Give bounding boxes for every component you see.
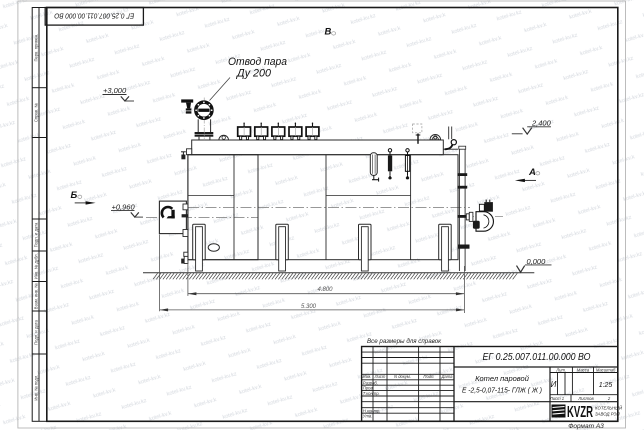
- svg-text:Инв. № дубл.: Инв. № дубл.: [33, 253, 38, 279]
- svg-text:Масса: Масса: [577, 367, 590, 372]
- svg-text:Листов: Листов: [577, 396, 594, 401]
- svg-text:Дата: Дата: [440, 374, 453, 379]
- svg-text:ЗАВОД РЭП: ЗАВОД РЭП: [595, 412, 621, 417]
- svg-text:Лист 1: Лист 1: [549, 396, 564, 401]
- svg-text:Б: Б: [71, 190, 78, 201]
- svg-text:Утв.: Утв.: [363, 414, 373, 419]
- svg-text:Лист: Лист: [374, 374, 386, 379]
- svg-text:+3,000: +3,000: [103, 86, 127, 95]
- svg-text:ЕГ 0.25.007.011.00.000 ВО: ЕГ 0.25.007.011.00.000 ВО: [483, 352, 591, 363]
- svg-text:Все размеры для справок: Все размеры для справок: [367, 338, 442, 345]
- svg-text:Масштаб: Масштаб: [596, 367, 616, 372]
- svg-text:Ду 200: Ду 200: [235, 68, 272, 80]
- svg-text:ЕГ 0.25.007.011.00.000 ВО: ЕГ 0.25.007.011.00.000 ВО: [54, 11, 134, 20]
- svg-text:Подп. и дата: Подп. и дата: [33, 319, 38, 344]
- svg-text:+0,960: +0,960: [112, 202, 136, 211]
- svg-text:Котел паровой: Котел паровой: [475, 374, 530, 383]
- svg-text:Пров.: Пров.: [363, 386, 374, 391]
- svg-text:И: И: [551, 380, 557, 389]
- svg-text:Справ. №: Справ. №: [33, 103, 38, 123]
- svg-text:Взам. инв. №: Взам. инв. №: [33, 283, 38, 309]
- svg-text:4.800: 4.800: [317, 287, 333, 293]
- svg-text:КОТЕЛЬНЫЙ: КОТЕЛЬНЫЙ: [595, 406, 623, 411]
- svg-text:2,400: 2,400: [531, 119, 552, 128]
- svg-text:Н.контр.: Н.контр.: [363, 408, 381, 413]
- svg-text:KVZR: KVZR: [567, 404, 593, 421]
- svg-text:N докум.: N докум.: [394, 374, 411, 379]
- svg-text:0,000: 0,000: [527, 257, 547, 266]
- svg-text:Т.контр.: Т.контр.: [363, 391, 380, 396]
- svg-text:Разраб.: Разраб.: [363, 380, 378, 385]
- svg-text:Перв. примен.: Перв. примен.: [33, 34, 38, 62]
- svg-text:Е -2,5-0,07-115- ГЛЖ ( Ж ): Е -2,5-0,07-115- ГЛЖ ( Ж ): [462, 386, 542, 395]
- svg-text:Формат А3: Формат А3: [568, 423, 604, 430]
- svg-text:Отвод пара: Отвод пара: [228, 56, 287, 68]
- svg-text:А: А: [528, 167, 536, 178]
- svg-text:Подп. и дата: Подп. и дата: [33, 222, 38, 247]
- svg-text:5.300: 5.300: [301, 304, 317, 310]
- svg-text:Подп.: Подп.: [423, 374, 434, 379]
- svg-text:В: В: [325, 27, 332, 38]
- svg-text:Инв. № подл.: Инв. № подл.: [33, 375, 38, 401]
- svg-text:Изм.: Изм.: [363, 374, 372, 379]
- svg-text:Лит.: Лит.: [555, 367, 566, 372]
- svg-text:1:25: 1:25: [599, 382, 613, 389]
